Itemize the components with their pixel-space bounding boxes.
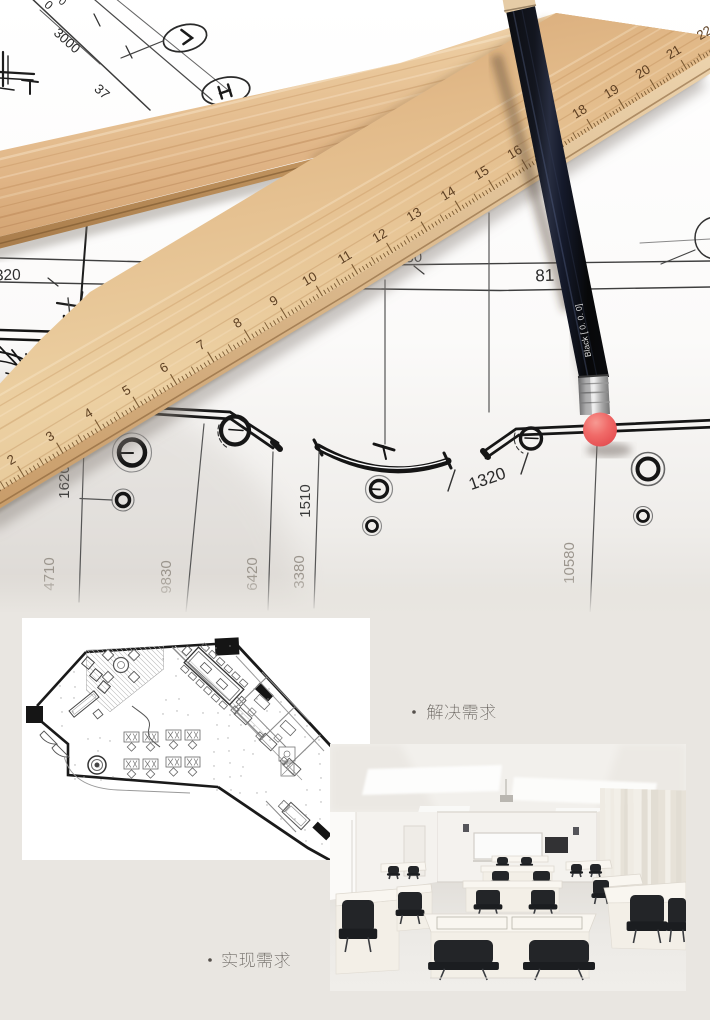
- svg-text:320: 320: [0, 267, 21, 285]
- svg-text:1510: 1510: [297, 484, 314, 517]
